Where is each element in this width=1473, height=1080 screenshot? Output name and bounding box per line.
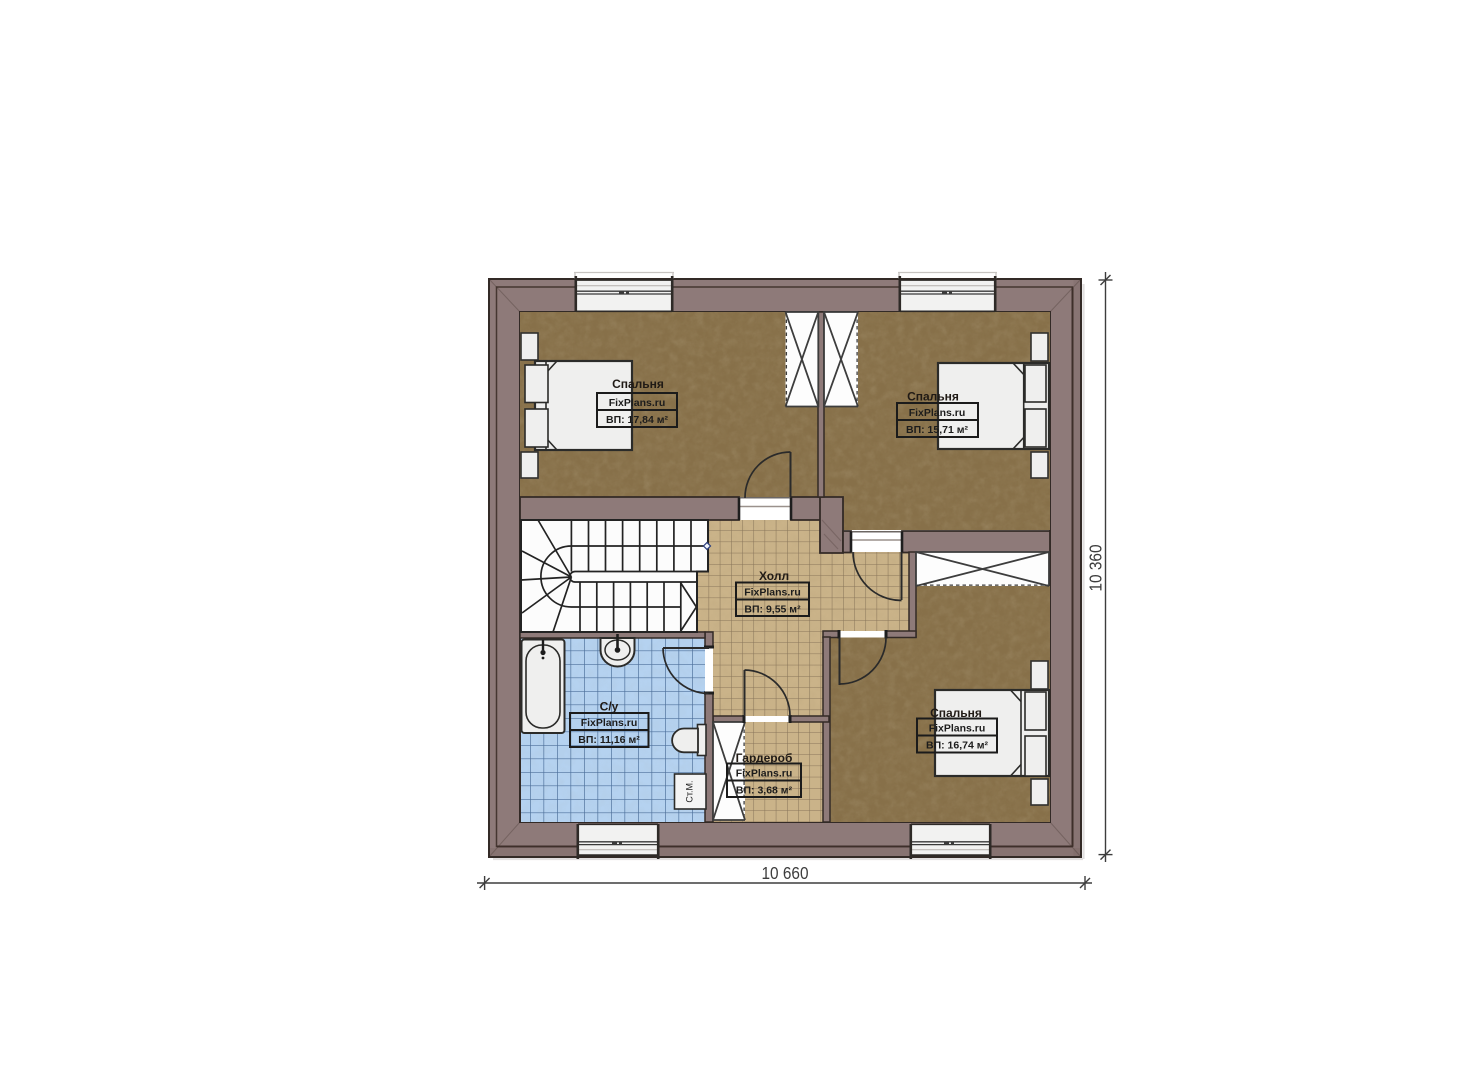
svg-text:FixPlans.ru: FixPlans.ru [929, 723, 986, 735]
svg-text:ВП: 3,68 м²: ВП: 3,68 м² [736, 785, 793, 797]
svg-text:Ст.М.: Ст.М. [684, 780, 694, 802]
svg-text:ВП: 17,84 м²: ВП: 17,84 м² [606, 414, 669, 426]
svg-text:FixPlans.ru: FixPlans.ru [909, 407, 966, 419]
svg-text:ВП: 9,55 м²: ВП: 9,55 м² [744, 604, 801, 616]
svg-text:FixPlans.ru: FixPlans.ru [744, 587, 801, 599]
svg-text:10 360: 10 360 [1086, 544, 1106, 591]
svg-text:ВП: 15,71 м²: ВП: 15,71 м² [906, 424, 969, 436]
svg-text:ВП: 16,74 м²: ВП: 16,74 м² [926, 740, 989, 752]
svg-text:ВП: 11,16 м²: ВП: 11,16 м² [578, 734, 640, 746]
svg-text:Спальня: Спальня [907, 390, 959, 404]
svg-text:FixPlans.ru: FixPlans.ru [609, 397, 666, 409]
svg-text:10 660: 10 660 [762, 863, 809, 883]
svg-text:FixPlans.ru: FixPlans.ru [736, 768, 793, 780]
svg-text:Холл: Холл [759, 569, 789, 583]
svg-text:FixPlans.ru: FixPlans.ru [581, 717, 638, 729]
svg-text:Спальня: Спальня [612, 377, 664, 391]
svg-text:С/у: С/у [600, 700, 619, 714]
